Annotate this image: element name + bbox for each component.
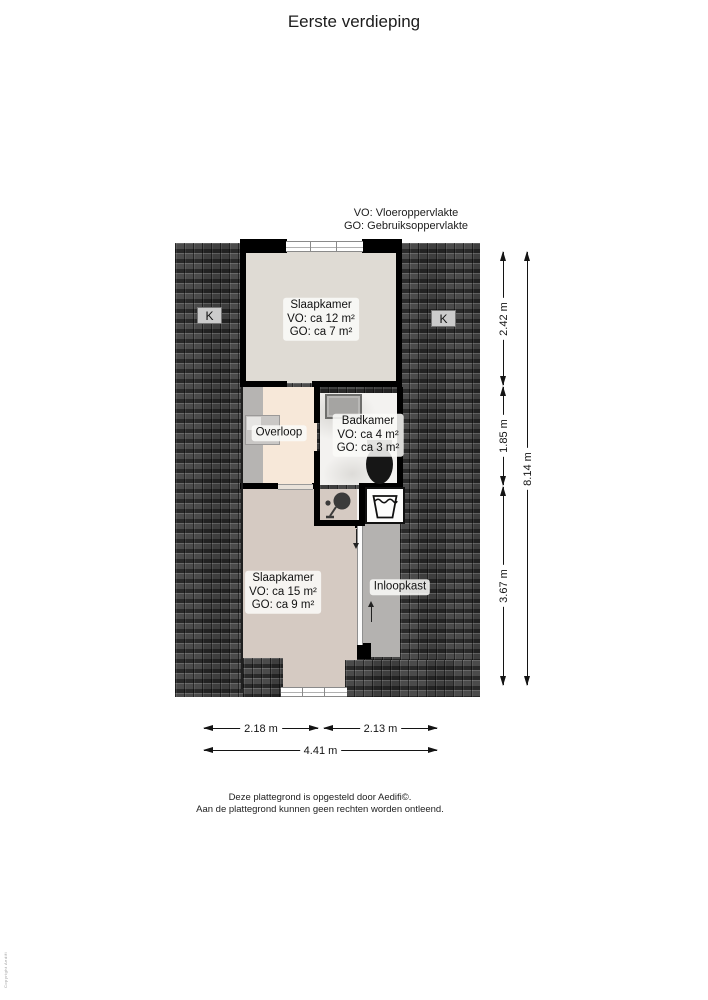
arrow-down-head bbox=[353, 543, 359, 549]
arrow-down-icon bbox=[524, 676, 530, 686]
room-go: GO: ca 9 m² bbox=[249, 599, 317, 613]
room-label-bedroom-bottom: Slaapkamer VO: ca 15 m² GO: ca 9 m² bbox=[245, 571, 321, 614]
wall bbox=[240, 239, 287, 253]
room-name: Badkamer bbox=[337, 415, 400, 429]
dimension-h1: 2.18 m bbox=[204, 728, 318, 729]
wall bbox=[314, 489, 320, 526]
arrow-up-icon bbox=[500, 486, 506, 496]
roof-area bbox=[345, 660, 480, 697]
arrow-right-icon bbox=[428, 725, 438, 731]
dimension-label: 2.42 m bbox=[498, 298, 510, 340]
legend-go: GO: Gebruiksoppervlakte bbox=[300, 220, 512, 233]
dormer-label-right: K bbox=[431, 310, 456, 327]
room-go: GO: ca 3 m² bbox=[337, 442, 400, 456]
page-title: Eerste verdieping bbox=[0, 12, 708, 32]
door-opening bbox=[278, 484, 313, 490]
wall bbox=[240, 381, 287, 387]
wall bbox=[396, 251, 402, 387]
arrow-down-icon bbox=[500, 376, 506, 386]
room-label-closet: Inloopkast bbox=[370, 579, 430, 595]
room-label-bathroom: Badkamer VO: ca 4 m² GO: ca 3 m² bbox=[333, 414, 404, 457]
room-name: Slaapkamer bbox=[249, 572, 317, 586]
arrow-left-icon bbox=[323, 725, 333, 731]
dimension-label: 3.67 m bbox=[498, 565, 510, 607]
dimension-v2: 1.85 m bbox=[503, 387, 504, 485]
room-vo: VO: ca 4 m² bbox=[337, 428, 400, 442]
arrow-left-icon bbox=[203, 725, 213, 731]
wall bbox=[240, 483, 278, 489]
arrow-left-icon bbox=[203, 747, 213, 753]
room-name: Slaapkamer bbox=[287, 299, 355, 313]
arrow-up-head bbox=[368, 601, 374, 607]
window-mullion bbox=[336, 242, 337, 251]
arrow-right-icon bbox=[428, 747, 438, 753]
room-name: Overloop bbox=[256, 426, 303, 440]
shower-icon bbox=[321, 490, 355, 519]
dimension-v1: 2.42 m bbox=[503, 252, 504, 385]
dormer-label-left: K bbox=[197, 307, 222, 324]
dimension-label: 2.13 m bbox=[360, 723, 402, 735]
dimension-label: 8.14 m bbox=[522, 448, 534, 490]
room-label-bedroom-top: Slaapkamer VO: ca 12 m² GO: ca 7 m² bbox=[283, 298, 359, 341]
room-vo: VO: ca 12 m² bbox=[287, 312, 355, 326]
arrow-down bbox=[356, 529, 357, 543]
roof-area bbox=[243, 658, 283, 697]
arrow-up bbox=[371, 607, 372, 622]
wall bbox=[314, 387, 320, 423]
wall bbox=[240, 251, 246, 387]
arrow-right-icon bbox=[309, 725, 319, 731]
arrow-up-icon bbox=[524, 251, 530, 261]
legend: VO: Vloeroppervlakte GO: Gebruiksoppervl… bbox=[300, 207, 512, 233]
dimension-label: 1.85 m bbox=[498, 415, 510, 457]
dimension-h-total: 4.41 m bbox=[204, 750, 437, 751]
wall bbox=[312, 381, 402, 387]
room-label-landing: Overloop bbox=[252, 425, 307, 441]
room-vo: VO: ca 15 m² bbox=[249, 585, 317, 599]
disclaimer-line1: Deze plattegrond is opgesteld door Aedif… bbox=[130, 792, 510, 804]
arrow-up-icon bbox=[500, 251, 506, 261]
room-name: Inloopkast bbox=[374, 580, 426, 594]
dimension-h2: 2.13 m bbox=[324, 728, 437, 729]
roof-edge-line bbox=[241, 387, 243, 689]
arrow-down-icon bbox=[500, 676, 506, 686]
dimension-label: 4.41 m bbox=[300, 745, 342, 757]
laundry-tub-icon bbox=[372, 493, 398, 519]
window-mullion bbox=[310, 242, 311, 251]
floor-plan: K K Slaapkamer VO: ca 12 m² GO: ca 7 m² … bbox=[175, 237, 480, 700]
watermark: Copyright Aedifi bbox=[3, 952, 8, 988]
window-mullion bbox=[324, 688, 325, 696]
window-mullion bbox=[302, 688, 303, 696]
disclaimer-line2: Aan de plattegrond kunnen geen rechten w… bbox=[130, 804, 510, 816]
disclaimer: Deze plattegrond is opgesteld door Aedif… bbox=[130, 792, 510, 815]
arrow-down-icon bbox=[500, 476, 506, 486]
dimension-v3: 3.67 m bbox=[503, 487, 504, 685]
window bbox=[281, 687, 347, 697]
wall bbox=[357, 643, 371, 659]
dimension-label: 2.18 m bbox=[240, 723, 282, 735]
window bbox=[286, 241, 363, 252]
dimension-v-total: 8.14 m bbox=[527, 252, 528, 685]
arrow-up-icon bbox=[500, 386, 506, 396]
legend-vo: VO: Vloeroppervlakte bbox=[300, 207, 512, 220]
room-go: GO: ca 7 m² bbox=[287, 326, 355, 340]
